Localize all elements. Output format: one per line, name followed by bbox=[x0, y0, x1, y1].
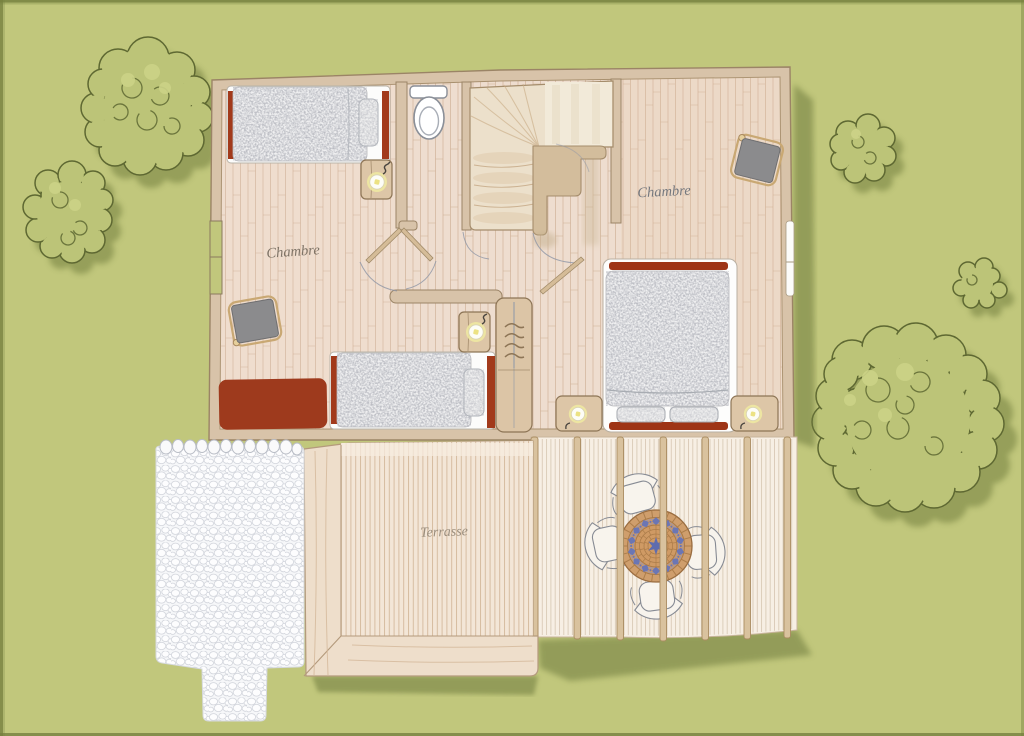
svg-text:Chambre: Chambre bbox=[637, 183, 692, 202]
svg-text:Terrasse: Terrasse bbox=[420, 524, 468, 541]
